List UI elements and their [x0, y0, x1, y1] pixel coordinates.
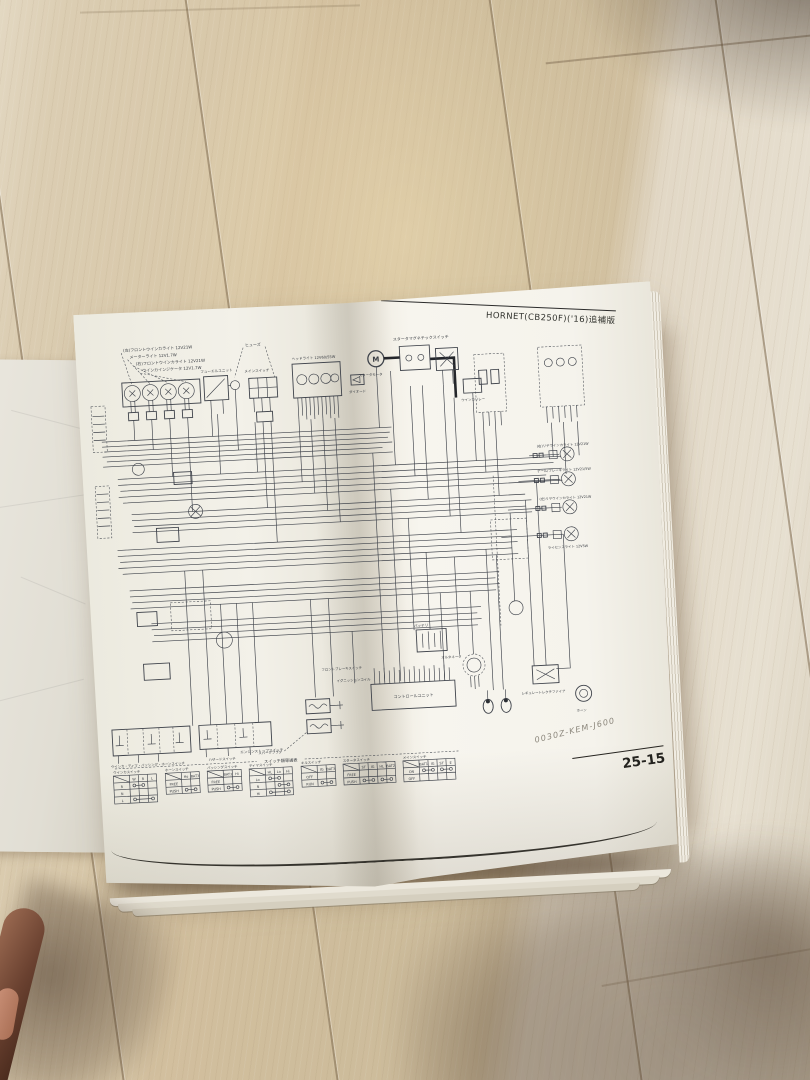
table-title: ホーンスイッチ — [165, 766, 189, 772]
shadow-top-right — [560, 0, 810, 130]
headlight-cluster: ヘッドライト 12V60/55W — [292, 354, 343, 420]
wiring-diagram: (左)フロントウインカライト 12V21W メーターライト 12V1.7W (右… — [87, 318, 659, 820]
table-title: ウインカスイッチ — [113, 769, 141, 775]
starter-cluster: スタータマグネチックスイッチ M スタータモータ ダイオード ウインカリレー — [346, 331, 485, 408]
table-title: メインスイッチ — [403, 754, 428, 760]
row-label: FREE — [211, 780, 220, 784]
row-label: PUSH — [169, 789, 179, 794]
row-label: Lo — [256, 778, 260, 782]
table-title: キルスイッチ — [301, 759, 322, 765]
meter-cluster — [474, 345, 586, 431]
label-license-light: ライセンスライト 12V5W — [548, 543, 589, 550]
label-headlight: ヘッドライト 12V60/55W — [292, 354, 336, 361]
table-title: スタータスイッチ — [343, 757, 371, 763]
table-kill-switch: キルスイッチ IG BAT3 OFF RUN — [301, 758, 336, 787]
label-tail-brake-light: テール/ブレーキライト 12V21/5W — [537, 466, 592, 474]
label-rear-winker-right: (右)リヤウインカライト 12V21W — [537, 441, 590, 449]
table-horn-switch: ホーンスイッチ Ho BAT3 FREE PUSH — [165, 766, 200, 795]
continuity-section: スイッチ類導通表 ウインカスイッチ W R L R N L — [113, 748, 461, 804]
row-label: L — [122, 799, 124, 803]
table-passing-switch: パッシングスイッチ BAT3 Hi FREE PUSH — [207, 763, 242, 792]
col-header: L — [151, 776, 153, 780]
label-regulator: レギュレートレクチファイア — [521, 688, 566, 695]
label-rear-winker-left: (左)リヤウインカライト 12V21W — [539, 494, 592, 502]
front-lamp-cluster — [122, 379, 202, 421]
row-label: N — [121, 792, 124, 796]
col-header: R — [142, 777, 145, 781]
table-winker-switch: ウインカスイッチ W R L R N L — [113, 768, 158, 804]
page-bottom-edge-line — [111, 820, 658, 877]
col-header: BAT3 — [326, 767, 335, 771]
label-alternator: オルタネータ — [441, 654, 462, 660]
label-horn: ホーン — [576, 707, 587, 713]
page-number-text: 25-15 — [621, 750, 666, 772]
fuel-unit: フューエルユニット — [200, 367, 241, 415]
label-hazard-switch: ハザードスイッチ — [208, 756, 236, 762]
label-fuel-unit: フューエルユニット — [200, 367, 233, 374]
label-diode: ダイオード — [349, 388, 366, 394]
col-header: Lo — [277, 770, 281, 774]
label-battery: バッテリ — [414, 622, 429, 628]
col-header: HL — [379, 764, 384, 768]
label-main-switch: メインスイッチ — [244, 367, 270, 373]
col-header: W — [132, 777, 136, 781]
showthrough-mark — [11, 410, 89, 431]
label-ignition-coil: イグニッションコイル — [337, 676, 372, 683]
label-ecu: コントロールユニット — [393, 692, 433, 699]
col-header: BAT1 — [419, 762, 428, 766]
row-label: N — [257, 785, 260, 789]
photo-scene: HORNET(CB250F)('16)追補版 (左)フロントウインカライト 12… — [0, 0, 810, 1080]
switch-housings: ウインカ・ディマ・パッシング・ホーンスイッチ ハザードスイッチ エンジンストップ… — [109, 721, 284, 769]
starter-motor-symbol: M — [372, 356, 379, 364]
col-header: ST — [361, 765, 366, 769]
label-front-brake-switch: フロントブレーキスイッチ — [321, 665, 362, 672]
col-header: BAT2 — [386, 764, 395, 768]
col-header: HL — [268, 770, 273, 774]
row-label: FREE — [347, 773, 356, 777]
table-main-switch: メインスイッチ BAT1 IG ST E ON OFF — [403, 752, 456, 782]
col-header: ST — [439, 761, 444, 765]
row-label: OFF — [306, 775, 313, 779]
col-header: Hi — [286, 769, 290, 773]
row-label: ON — [409, 770, 415, 774]
col-header: BAT3 — [223, 772, 232, 776]
main-switch: メインスイッチ — [244, 367, 279, 423]
row-label: OFF — [408, 777, 415, 781]
col-header: Hi — [235, 772, 239, 776]
table-title: パッシングスイッチ — [207, 764, 238, 771]
table-dimmer-switch: ディマスイッチ HL Lo Hi Lo N Hi — [249, 761, 294, 797]
col-header: IG — [320, 768, 324, 772]
service-manual-book: HORNET(CB250F)('16)追補版 (左)フロントウインカライト 12… — [73, 281, 681, 900]
col-header: E — [449, 761, 451, 765]
row-label: Hi — [257, 792, 261, 796]
wiring-diagram-spread: HORNET(CB250F)('16)追補版 (左)フロントウインカライト 12… — [73, 281, 681, 900]
col-header: IG — [371, 765, 375, 769]
col-header: IG — [431, 762, 435, 766]
col-header: BAT3 — [191, 774, 200, 778]
row-label: FREE — [169, 782, 178, 786]
row-label: R — [121, 785, 124, 789]
table-starter-switch: スタータスイッチ ST IG HL BAT2 FREE PUSH — [343, 755, 396, 785]
mesh-connectors — [91, 383, 554, 682]
label-meter-light: メーターライト 12V1.7W — [129, 351, 177, 359]
showthrough-mark — [0, 493, 94, 508]
showthrough-mark — [21, 577, 86, 605]
label-front-winker-left: (左)フロントウインカライト 12V21W — [123, 343, 193, 353]
col-header: Ho — [184, 775, 189, 779]
table-title: ディマスイッチ — [249, 762, 273, 768]
label-fuse: ヒューズ — [245, 341, 261, 348]
label-starter-relay: スタータマグネチックスイッチ — [393, 333, 449, 342]
row-label: PUSH — [347, 780, 357, 785]
wire-mesh — [99, 361, 592, 729]
showthrough-mark — [0, 679, 84, 702]
row-label: PUSH — [211, 787, 221, 792]
row-label: RUN — [306, 782, 314, 786]
